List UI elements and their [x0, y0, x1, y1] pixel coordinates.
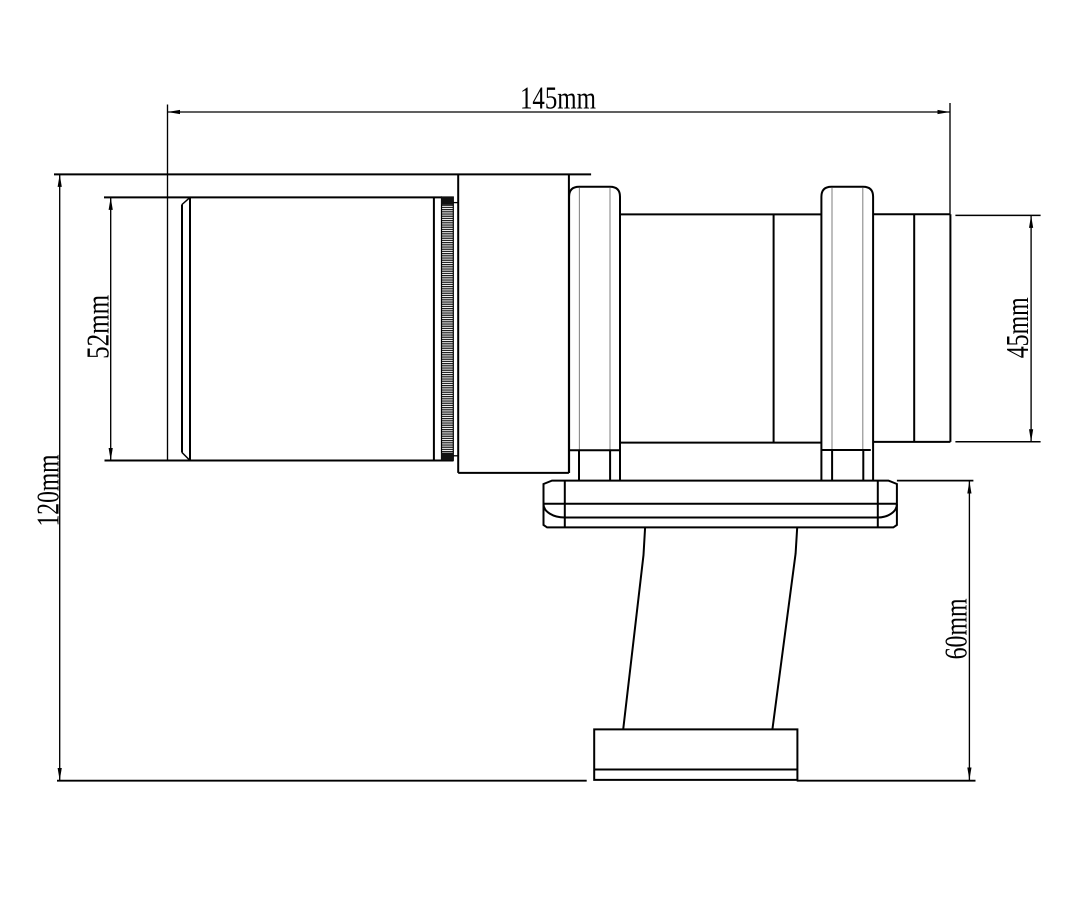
- svg-text:45mm: 45mm: [999, 297, 1035, 358]
- svg-text:145mm: 145mm: [520, 80, 596, 116]
- svg-text:120mm: 120mm: [29, 454, 65, 526]
- svg-text:52mm: 52mm: [80, 295, 116, 359]
- svg-text:60mm: 60mm: [938, 598, 974, 659]
